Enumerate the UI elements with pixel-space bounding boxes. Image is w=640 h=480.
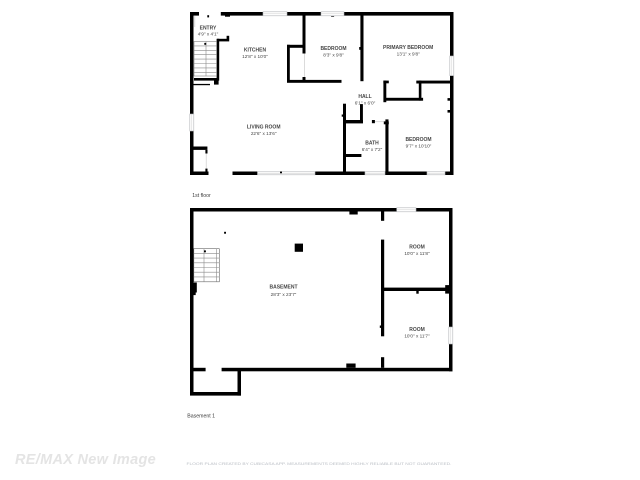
svg-text:13'1" x 9'8": 13'1" x 9'8" — [397, 51, 420, 56]
svg-text:PRIMARY BEDROOM: PRIMARY BEDROOM — [383, 45, 433, 51]
svg-text:Basement 1: Basement 1 — [187, 414, 215, 420]
svg-text:ROOM: ROOM — [409, 244, 425, 250]
svg-text:KITCHEN: KITCHEN — [244, 47, 267, 53]
svg-text:8'3" x 9'8": 8'3" x 9'8" — [323, 52, 344, 57]
svg-text:6'1" x 6'0": 6'1" x 6'0" — [355, 101, 376, 106]
svg-text:BEDROOM: BEDROOM — [320, 46, 346, 52]
svg-text:22'6" x 13'6": 22'6" x 13'6" — [251, 131, 277, 136]
svg-text:12'8" x 10'0": 12'8" x 10'0" — [242, 54, 268, 59]
svg-text:BASEMENT: BASEMENT — [269, 285, 297, 291]
svg-text:9'7" x 10'10": 9'7" x 10'10" — [406, 144, 432, 149]
svg-text:FLOOR PLAN CREATED BY CUBICASA: FLOOR PLAN CREATED BY CUBICASA APP. MEAS… — [187, 462, 452, 466]
svg-text:1st floor: 1st floor — [192, 193, 211, 199]
svg-text:4'9" x 4'1": 4'9" x 4'1" — [198, 32, 219, 37]
svg-text:10'0" x 11'7": 10'0" x 11'7" — [404, 334, 430, 339]
svg-text:BATH: BATH — [365, 141, 379, 147]
svg-text:ROOM: ROOM — [409, 327, 425, 333]
svg-text:HALL: HALL — [358, 94, 371, 100]
svg-text:RE/MAX New Image: RE/MAX New Image — [15, 452, 156, 468]
svg-text:BEDROOM: BEDROOM — [405, 137, 431, 143]
svg-text:ENTRY: ENTRY — [200, 26, 217, 32]
svg-text:LIVING ROOM: LIVING ROOM — [247, 124, 281, 130]
svg-text:6'4" x 7'2": 6'4" x 7'2" — [362, 147, 383, 152]
svg-text:10'0" x 11'8": 10'0" x 11'8" — [404, 251, 430, 256]
svg-text:28'3" x 23'7": 28'3" x 23'7" — [271, 292, 297, 297]
